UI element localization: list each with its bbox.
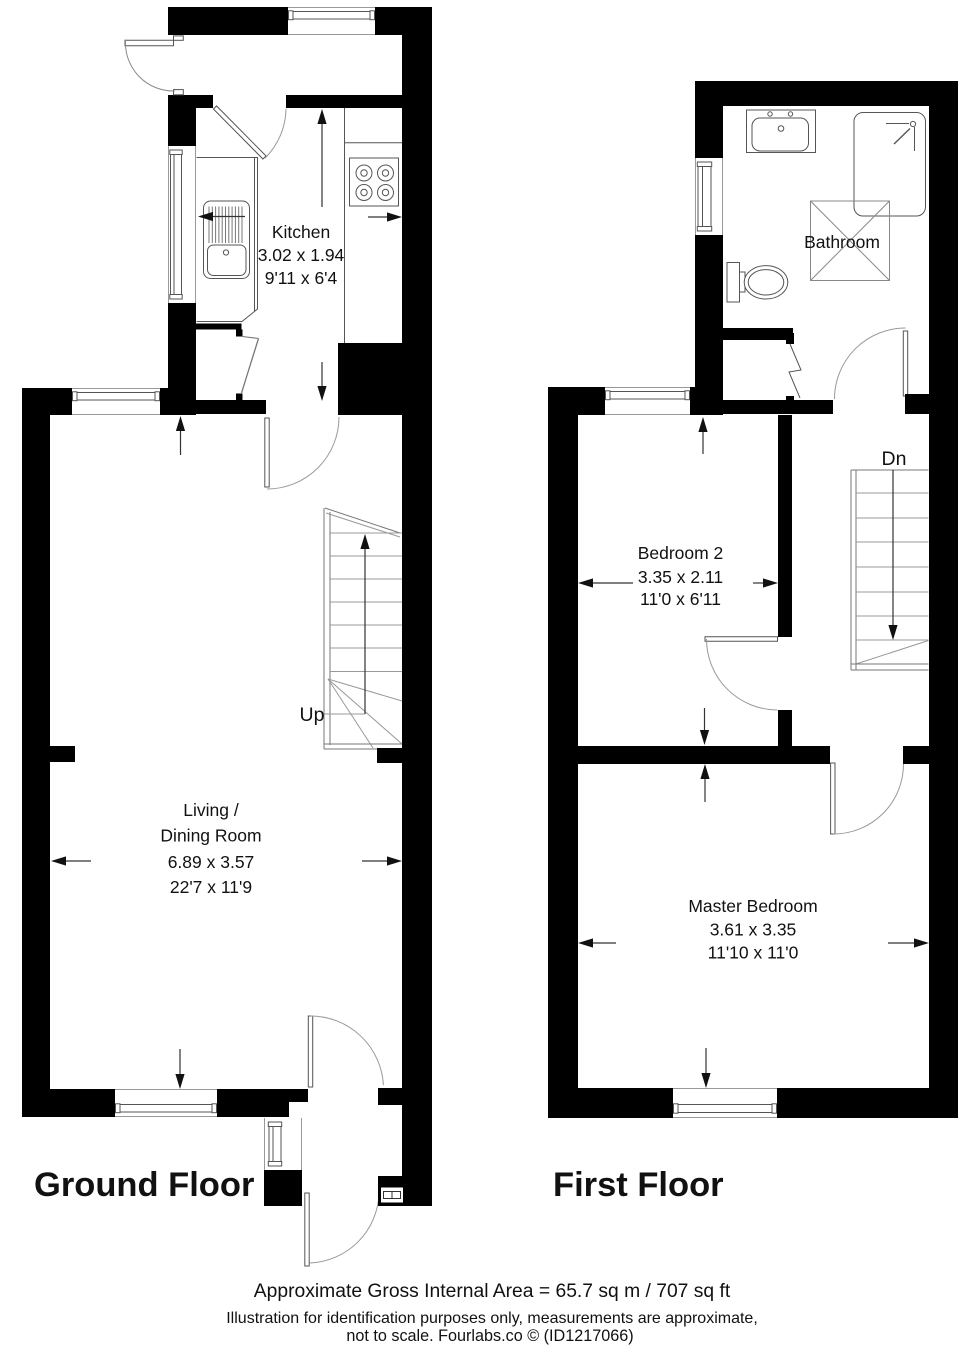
svg-text:Bedroom 2: Bedroom 2 <box>638 543 724 563</box>
svg-text:Bathroom: Bathroom <box>804 232 880 252</box>
svg-text:3.02 x 1.94: 3.02 x 1.94 <box>258 245 345 265</box>
svg-text:Approximate Gross Internal Are: Approximate Gross Internal Area = 65.7 s… <box>254 1281 731 1302</box>
svg-text:11'10 x 11'0: 11'10 x 11'0 <box>708 943 799 963</box>
svg-text:3.61 x 3.35: 3.61 x 3.35 <box>710 920 797 940</box>
svg-text:Ground Floor: Ground Floor <box>34 1166 254 1204</box>
svg-text:Dn: Dn <box>882 448 907 470</box>
svg-text:Master Bedroom: Master Bedroom <box>688 896 817 916</box>
svg-text:Up: Up <box>300 704 325 726</box>
svg-text:Dining Room: Dining Room <box>160 826 261 846</box>
svg-text:11'0 x 6'11: 11'0 x 6'11 <box>640 589 721 609</box>
svg-text:Illustration for identificatio: Illustration for identification purposes… <box>226 1310 758 1327</box>
svg-text:6.89 x 3.57: 6.89 x 3.57 <box>168 852 255 872</box>
svg-text:Living /: Living / <box>183 800 239 820</box>
svg-text:Kitchen: Kitchen <box>272 222 330 242</box>
svg-text:not to scale. Fourlabs.co © (I: not to scale. Fourlabs.co © (ID1217066) <box>346 1327 633 1345</box>
svg-text:First Floor: First Floor <box>553 1166 724 1204</box>
svg-text:3.35 x 2.11: 3.35 x 2.11 <box>638 567 723 587</box>
svg-text:22'7 x 11'9: 22'7 x 11'9 <box>170 877 252 897</box>
svg-text:9'11 x 6'4: 9'11 x 6'4 <box>265 268 338 288</box>
